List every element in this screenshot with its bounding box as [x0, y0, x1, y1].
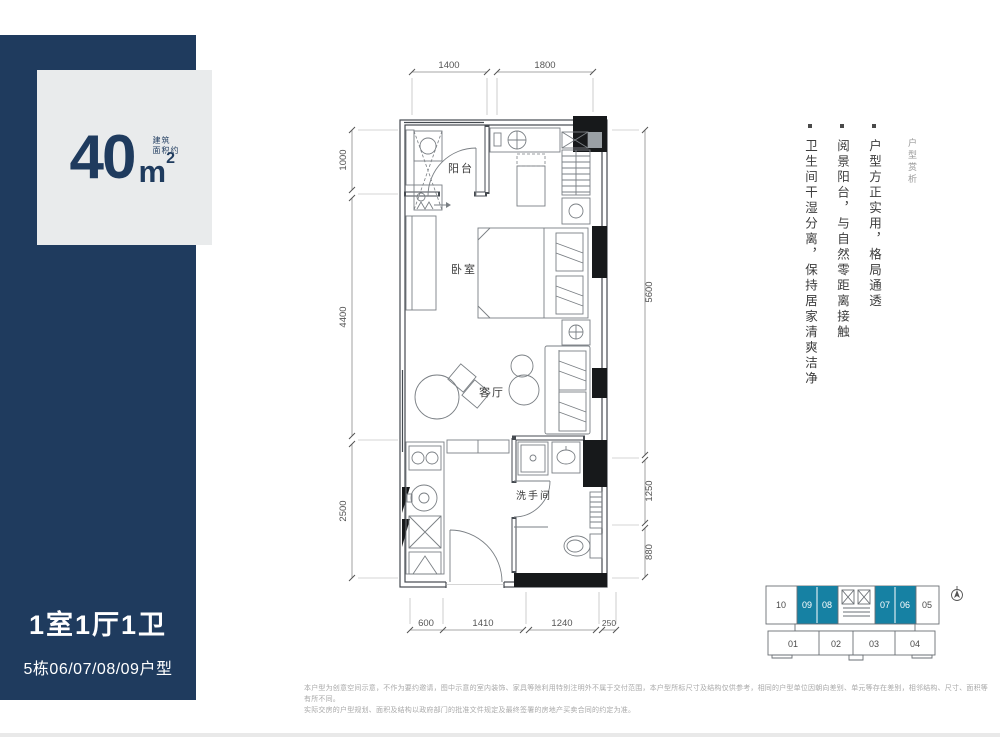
area-card: 40 建筑 面积约 m 2	[37, 70, 212, 245]
dim-right-2: 1250	[644, 480, 655, 501]
area-unit-superscript: 2	[166, 152, 175, 166]
unit-08: 08	[822, 600, 832, 610]
analysis-point-2: 阅景阳台，与自然零距离接触	[833, 108, 852, 408]
room-label-balcony: 阳台	[448, 161, 474, 175]
building-keyplan: 10 09 08 07 06 05 01 02 03 04	[755, 575, 970, 665]
disclaimer: 本户型为创意空间示意，不作为要约邀请，图中示意的室内装饰、家具等除利用特别注明外…	[304, 683, 994, 716]
unit-04: 04	[910, 639, 920, 649]
analysis-label: 户型赏析	[906, 108, 919, 408]
keyplan-top-row: 10 09 08 07 06 05	[766, 586, 939, 624]
bullet-icon	[808, 124, 812, 128]
unit-01: 01	[788, 639, 798, 649]
unit-07: 07	[880, 600, 890, 610]
keyplan-bottom-row: 01 02 03 04	[768, 624, 935, 660]
unit-02: 02	[831, 639, 841, 649]
analysis-point-1-text: 户型方正实用，格局通透	[867, 139, 881, 310]
unit-05: 05	[922, 600, 932, 610]
unit-building-subtitle: 5栋06/07/08/09户型	[0, 655, 196, 679]
disclaimer-line1: 本户型为创意空间示意，不作为要约邀请，图中示意的室内装饰、家具等除利用特别注明外…	[304, 683, 994, 705]
unit-10: 10	[776, 600, 786, 610]
room-label-living: 客厅	[479, 385, 505, 399]
area-note-line1: 建筑	[152, 136, 170, 145]
bottom-strip	[0, 733, 1000, 737]
unit-09: 09	[802, 600, 812, 610]
dim-bottom-3: 1240	[551, 618, 572, 629]
poster: 1室1厅1卫 5栋06/07/08/09户型 40 建筑 面积约 m 2	[0, 0, 1000, 737]
unit-layout-title: 1室1厅1卫	[0, 603, 196, 642]
analysis-point-3-text: 卫生间干湿分离，保持居家清爽洁净	[803, 139, 817, 387]
floorplan-drawing: 1400 1800 1000 4400 2500 5600 1250 880 6…	[300, 40, 680, 645]
dim-right-3: 880	[644, 544, 655, 560]
bullet-icon	[872, 124, 876, 128]
dim-left-1: 1000	[338, 149, 349, 170]
area-number: 40	[70, 130, 135, 186]
dim-bottom-4: 250	[602, 618, 616, 628]
analysis-point-1: 户型方正实用，格局通透	[865, 108, 884, 408]
dim-bottom-2: 1410	[472, 618, 493, 629]
dim-bottom-1: 600	[418, 618, 434, 629]
dim-top-1: 1400	[438, 60, 459, 71]
dim-top-2: 1800	[534, 60, 555, 71]
analysis-point-3: 卫生间干湿分离，保持居家清爽洁净	[801, 108, 820, 408]
corridor	[795, 624, 915, 631]
analysis-point-2-text: 阅景阳台，与自然零距离接触	[835, 139, 849, 341]
bullet-icon	[840, 124, 844, 128]
disclaimer-line2: 实际交房的户型规划、面积及结构以政府部门的批准文件规定及最终签署的房地产买卖合同…	[304, 705, 994, 716]
unit-info: 1室1厅1卫 5栋06/07/08/09户型	[0, 603, 196, 679]
dim-left-2: 4400	[338, 306, 349, 327]
area-card-inner: 40 建筑 面积约 m 2	[70, 130, 180, 186]
column	[588, 132, 602, 148]
room-label-bedroom: 卧室	[451, 262, 477, 276]
dim-left-3: 2500	[338, 500, 349, 521]
compass-icon	[952, 586, 963, 601]
unit-06: 06	[900, 600, 910, 610]
unit-03: 03	[869, 639, 879, 649]
analysis-block: 户型赏析 户型方正实用，格局通透 阅景阳台，与自然零距离接触 卫生间干湿分离，保…	[788, 108, 919, 408]
dim-right-1: 5600	[644, 281, 655, 302]
area-unit: m	[138, 158, 166, 186]
room-label-bathroom: 洗手间	[516, 489, 552, 502]
